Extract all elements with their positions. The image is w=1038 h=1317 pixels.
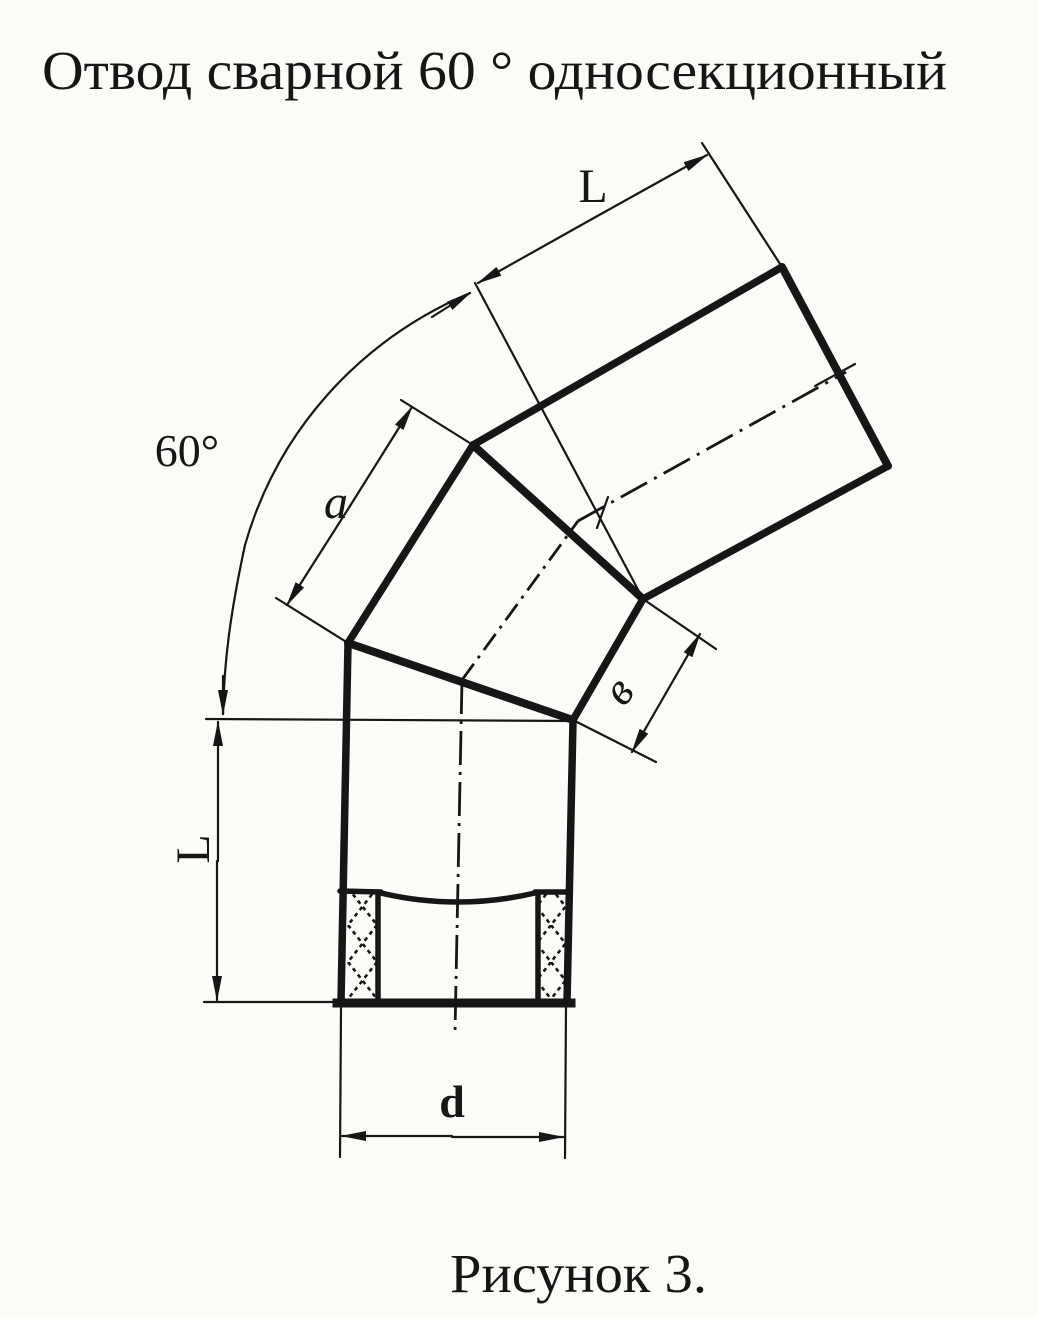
weld-seam-upper <box>473 445 643 599</box>
label-angle: 60° <box>155 425 219 476</box>
upper-pipe-end-face <box>782 267 888 466</box>
dimension-d: d <box>340 1005 566 1158</box>
upper-pipe-centerline <box>578 372 846 521</box>
dim-line-a-upper <box>350 407 412 506</box>
label-d: d <box>439 1076 465 1127</box>
ext-line-end-face-corner <box>702 143 782 267</box>
middle-section-outer-edge <box>348 445 473 643</box>
label-L-left: L <box>167 834 220 863</box>
ext-line-v-lower <box>573 720 656 762</box>
dimension-v: в <box>573 599 716 762</box>
socket-left-top-line <box>340 891 381 892</box>
upper-pipe-outer-edge <box>473 267 782 445</box>
socket-right-hatch <box>539 894 566 1000</box>
ext-line-v-upper <box>643 599 716 649</box>
elbow-outline <box>337 267 888 1003</box>
vertical-pipe-centerline <box>455 680 462 1032</box>
label-v: в <box>592 667 645 714</box>
dim-line-v-upper <box>666 634 700 693</box>
scanned-drawing-page: Отвод сварной 60 ° односекционный Рисуно… <box>0 0 1038 1317</box>
elbow-technical-drawing: Отвод сварной 60 ° односекционный Рисуно… <box>0 0 1038 1317</box>
bottom-pipe-left-wall <box>341 644 348 1002</box>
ext-line-weld-corner <box>475 283 643 599</box>
dim-line-L-top-left <box>478 219 592 283</box>
dimension-angle-60: 60° <box>155 293 470 714</box>
label-a: a <box>324 476 348 529</box>
ext-line-d-right <box>565 1005 566 1158</box>
figure-caption: Рисунок 3. <box>450 1243 707 1304</box>
socket-detail <box>340 891 570 1001</box>
ext-line-L-left-top <box>206 719 573 721</box>
middle-section-centerline <box>462 521 578 680</box>
ext-line-d-left <box>340 1008 341 1157</box>
drawing-title: Отвод сварной 60 ° односекционный <box>42 40 947 101</box>
dim-line-L-top-right <box>592 155 707 219</box>
label-L-top: L <box>578 160 607 213</box>
upper-pipe-inner-edge <box>643 466 888 599</box>
socket-left-hatch <box>348 893 376 1000</box>
bottom-pipe-right-wall <box>567 721 573 1002</box>
dimension-L-top: L <box>475 143 782 599</box>
angle-arc-arrow-top <box>432 293 470 317</box>
